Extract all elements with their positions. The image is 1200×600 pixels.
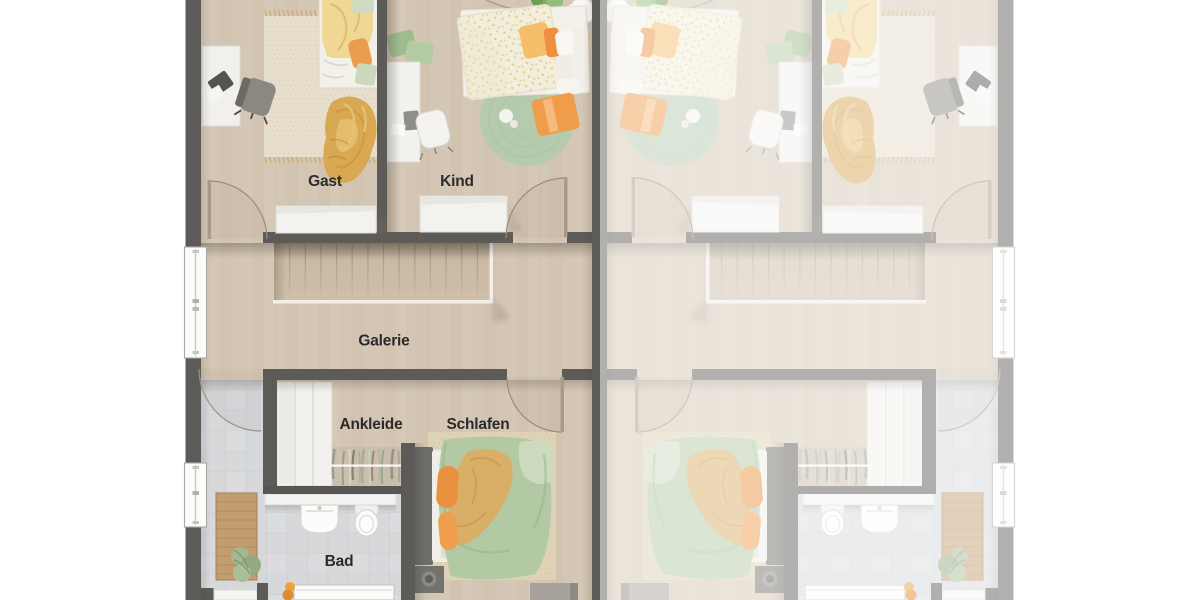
- svg-text:Ankleide: Ankleide: [339, 416, 403, 433]
- svg-text:Gast: Gast: [308, 173, 342, 190]
- svg-text:Kind: Kind: [440, 173, 474, 190]
- svg-text:Bad: Bad: [325, 553, 354, 570]
- svg-text:Galerie: Galerie: [358, 333, 410, 350]
- svg-text:Schlafen: Schlafen: [446, 416, 509, 433]
